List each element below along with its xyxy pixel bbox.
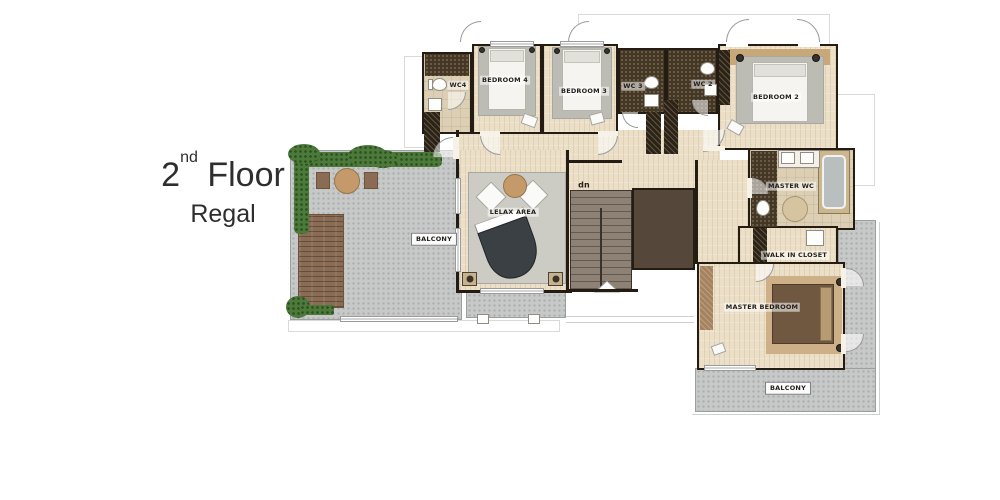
toilet xyxy=(644,76,659,89)
room-label-bedroom-3: BEDROOM 3 xyxy=(559,87,609,96)
pillows xyxy=(564,51,600,63)
french-door-arc xyxy=(568,21,589,42)
toilet xyxy=(700,62,715,75)
wardrobe xyxy=(646,112,661,154)
room-label-relax-area: LELAX AREA xyxy=(488,208,539,217)
floor-number: 2 xyxy=(161,156,180,194)
wardrobe xyxy=(719,50,730,105)
pillows xyxy=(490,50,524,62)
bush xyxy=(368,150,398,168)
wall xyxy=(566,289,638,292)
room-label-bedroom-4: BEDROOM 4 xyxy=(480,76,530,85)
toilet xyxy=(432,78,447,91)
room-label-master-wc: MASTER WC xyxy=(766,182,816,191)
room-label-walk-in-closet: WALK IN CLOSET xyxy=(761,251,829,260)
outdoor-stool xyxy=(316,172,330,189)
wall xyxy=(566,150,569,293)
floor-subtitle: Regal xyxy=(148,200,298,229)
french-door-arc xyxy=(460,21,481,42)
room-label-wc4: WC4 xyxy=(447,81,468,90)
roof-eave-line-right xyxy=(879,222,880,414)
room-label-wc3: WC 3 xyxy=(621,82,645,91)
outdoor-stool xyxy=(364,172,378,189)
stairs-down-label: dn xyxy=(576,180,592,191)
stairs-stringer xyxy=(600,208,602,288)
floor-ordinal: nd xyxy=(180,149,198,166)
sliding-door xyxy=(340,316,458,322)
door-gap xyxy=(703,146,725,151)
shower-mat xyxy=(782,196,808,222)
lamp xyxy=(812,54,820,62)
round-table xyxy=(334,168,360,194)
lamp xyxy=(736,54,744,62)
master-bed-pillows xyxy=(820,287,832,341)
sink xyxy=(644,94,659,107)
roof-eave-line-bottom xyxy=(692,414,880,415)
bathtub xyxy=(822,155,846,209)
window xyxy=(455,178,461,214)
terrace-post xyxy=(528,314,540,324)
door-gap xyxy=(726,42,748,47)
roof-eave-line xyxy=(566,316,694,317)
room-label-balcony-left: BALCONY xyxy=(411,233,457,246)
toilet xyxy=(756,200,770,216)
window xyxy=(480,288,544,294)
wall xyxy=(566,160,622,163)
window xyxy=(560,41,604,47)
pillows xyxy=(754,64,806,77)
terrace-post xyxy=(477,314,489,324)
door-gap xyxy=(480,131,500,136)
floorplan-canvas: 2nd Floor Regal xyxy=(0,0,1000,500)
door-gap xyxy=(453,137,459,159)
stairs-void xyxy=(632,188,695,270)
door-gap xyxy=(747,178,752,198)
planter-strip xyxy=(300,305,334,315)
relax-round-table xyxy=(503,174,527,198)
lamp xyxy=(604,48,610,54)
wall xyxy=(695,160,698,264)
sink xyxy=(800,152,814,164)
door-gap xyxy=(841,334,846,354)
closet-cabinet xyxy=(806,230,824,246)
door-gap xyxy=(841,268,846,288)
lamp xyxy=(529,47,535,53)
door-gap xyxy=(798,42,820,47)
sink xyxy=(781,152,795,164)
lamp xyxy=(554,48,560,54)
wc4-tile-band xyxy=(425,54,469,76)
room-label-bedroom-2: BEDROOM 2 xyxy=(751,93,801,102)
window xyxy=(704,365,756,371)
room-label-balcony-master: BALCONY xyxy=(765,382,811,395)
room-label-master-bedroom: MASTER BEDROOM xyxy=(724,303,800,312)
wardrobe xyxy=(664,100,678,154)
master-wardrobe xyxy=(700,266,713,330)
floor-word: Floor xyxy=(207,156,284,194)
lamp xyxy=(479,47,485,53)
room-label-wc2: WC 2 xyxy=(691,80,715,89)
floor-title: 2nd Floor xyxy=(148,156,298,195)
roof-eave-line xyxy=(566,322,694,323)
column xyxy=(548,272,563,286)
window xyxy=(490,41,534,47)
sink xyxy=(428,98,442,111)
door-gap xyxy=(598,131,618,136)
column xyxy=(462,272,477,286)
